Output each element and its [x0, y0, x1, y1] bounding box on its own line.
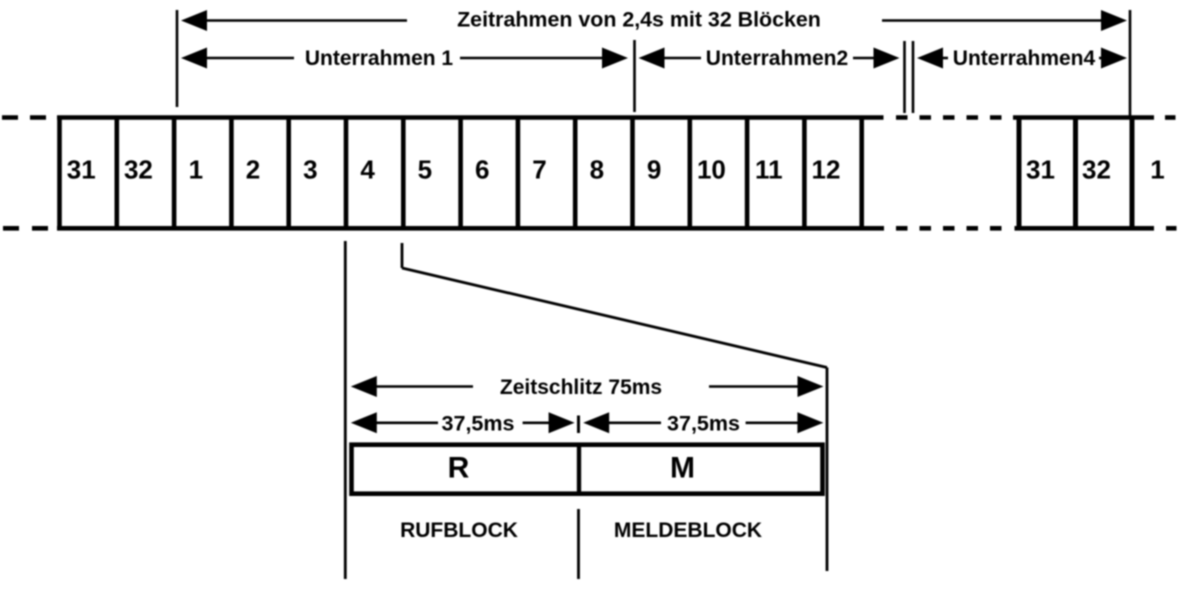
svg-text:11: 11	[755, 155, 783, 185]
svg-text:Zeitrahmen von 2,4s mit 32 Blö: Zeitrahmen von 2,4s mit 32 Blöcken	[457, 8, 821, 32]
svg-text:M: M	[670, 452, 695, 485]
svg-text:31: 31	[67, 155, 96, 185]
svg-text:12: 12	[812, 155, 841, 185]
svg-text:3: 3	[303, 155, 317, 185]
svg-text:9: 9	[647, 155, 661, 185]
svg-text:37,5ms: 37,5ms	[442, 412, 515, 436]
svg-text:37,5ms: 37,5ms	[667, 412, 740, 436]
svg-text:R: R	[448, 452, 470, 485]
svg-text:Zeitschlitz 75ms: Zeitschlitz 75ms	[500, 376, 662, 399]
svg-text:7: 7	[532, 155, 546, 185]
svg-text:Unterrahmen 1: Unterrahmen 1	[305, 47, 454, 70]
svg-text:5: 5	[418, 155, 432, 185]
svg-text:Unterrahmen2: Unterrahmen2	[706, 47, 848, 70]
svg-text:4: 4	[360, 155, 375, 185]
svg-text:MELDEBLOCK: MELDEBLOCK	[614, 519, 762, 542]
svg-text:31: 31	[1026, 155, 1055, 185]
svg-text:32: 32	[1082, 155, 1111, 185]
svg-text:2: 2	[246, 155, 260, 185]
svg-text:RUFBLOCK: RUFBLOCK	[400, 519, 518, 542]
svg-text:1: 1	[1150, 155, 1164, 185]
svg-text:10: 10	[697, 155, 726, 185]
svg-text:8: 8	[590, 155, 604, 185]
svg-text:1: 1	[189, 155, 203, 185]
svg-text:Unterrahmen4: Unterrahmen4	[953, 47, 1096, 70]
svg-text:32: 32	[124, 155, 153, 185]
svg-text:6: 6	[475, 155, 489, 185]
